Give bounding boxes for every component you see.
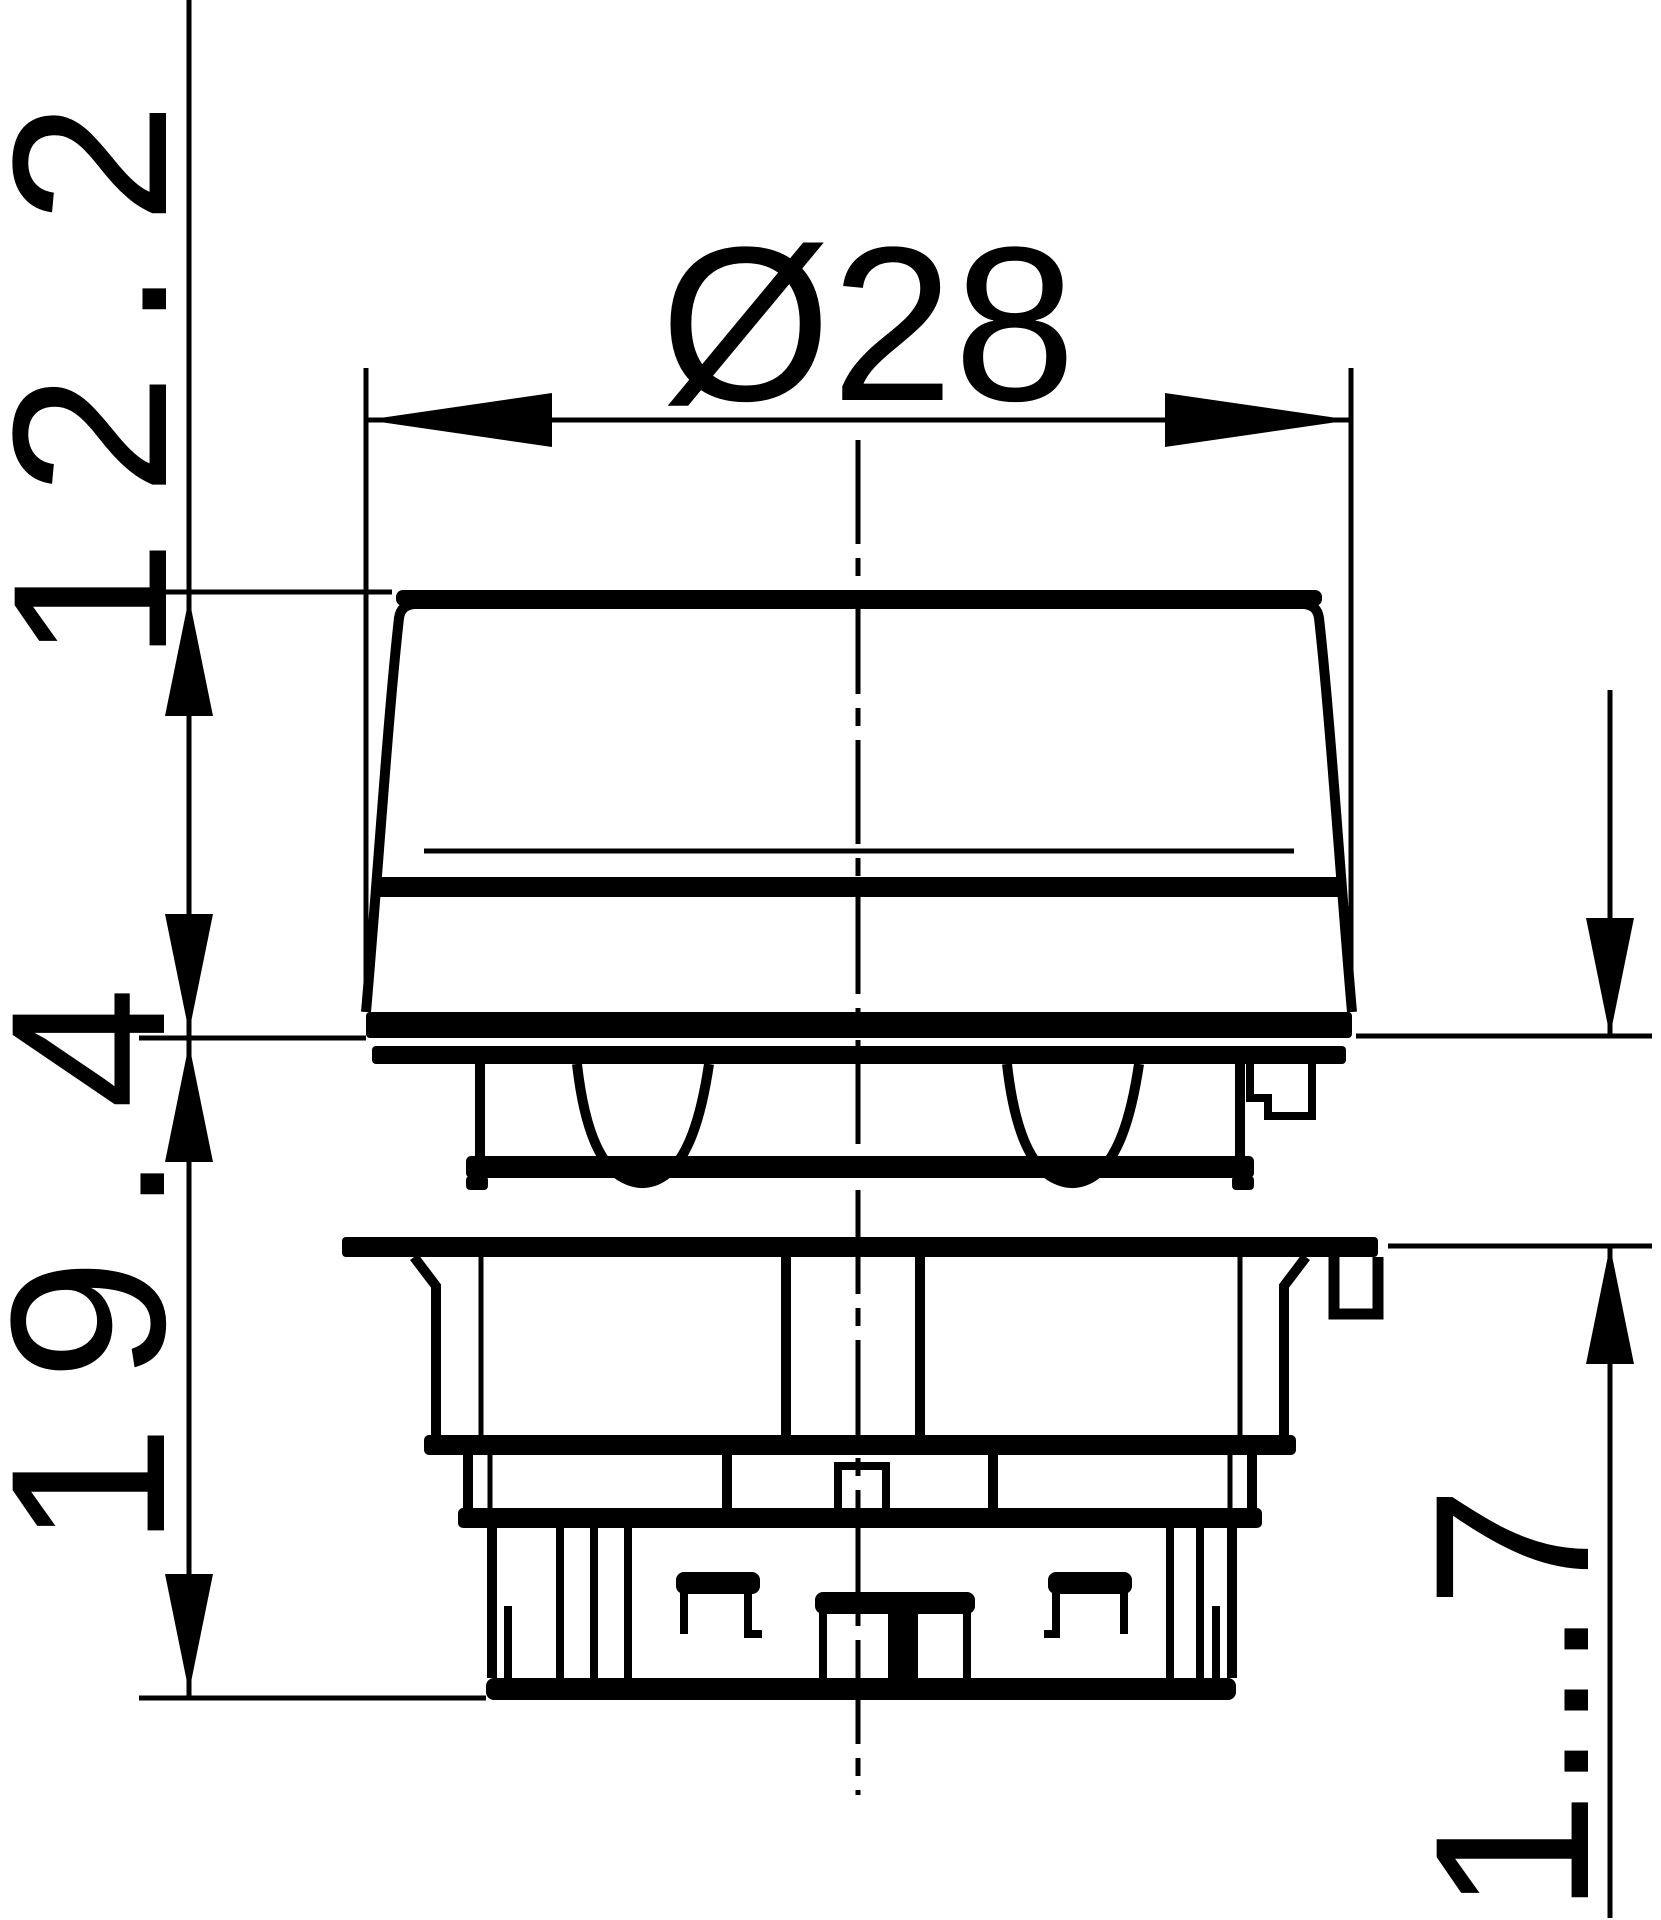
arrowhead-down bbox=[1586, 918, 1634, 1036]
skirt-band-lower bbox=[372, 1046, 1346, 1064]
flange-nose-right bbox=[1334, 1257, 1378, 1314]
cap-joint-bar bbox=[376, 877, 1342, 897]
dimension-panel-thickness: 1...7 bbox=[1356, 690, 1652, 1918]
tier-center-notch bbox=[838, 1466, 886, 1512]
dimension-left-column: 12.2 19.4 bbox=[0, 0, 486, 1698]
base-hook-right-cap bbox=[1048, 1572, 1132, 1594]
base-hook-left-leg bbox=[748, 1592, 762, 1634]
flange-bottom-bar bbox=[424, 1435, 1296, 1455]
flange-side-left bbox=[414, 1257, 436, 1437]
dim-label-diameter: Ø28 bbox=[660, 201, 1076, 447]
neck-with-snap-clips bbox=[466, 1064, 1312, 1190]
arrowhead-right bbox=[1165, 393, 1351, 447]
base-hook-left-cap bbox=[676, 1572, 760, 1594]
arrowhead-up bbox=[1586, 1246, 1634, 1364]
skirt-band-upper bbox=[366, 1012, 1352, 1038]
base-center-tooth bbox=[888, 1610, 918, 1682]
base-hook-right-leg bbox=[1044, 1592, 1056, 1634]
tier-bottom-bar bbox=[458, 1508, 1262, 1528]
neck-tab-right bbox=[1250, 1064, 1312, 1116]
arrowhead-down bbox=[165, 1574, 213, 1692]
arrowhead-left bbox=[366, 393, 552, 447]
base-bottom-edge bbox=[486, 1678, 1236, 1700]
cap-top-edge bbox=[396, 590, 1322, 606]
technical-drawing: Ø28 12.2 19.4 1...7 bbox=[0, 0, 1661, 1920]
flange-top-bar bbox=[342, 1237, 1378, 1257]
dim-label-body-height: 19.4 bbox=[0, 943, 211, 1547]
neck-bottom-bar bbox=[466, 1156, 1254, 1178]
neck-foot-left bbox=[466, 1176, 488, 1190]
flange-side-right bbox=[1284, 1257, 1306, 1437]
dim-label-panel-thickness: 1...7 bbox=[1389, 1486, 1635, 1914]
castellated-base bbox=[486, 1528, 1236, 1700]
neck-foot-right bbox=[1232, 1176, 1254, 1190]
pushbutton-side-view-drawing: Ø28 12.2 19.4 1...7 bbox=[0, 0, 1661, 1920]
dim-label-cap-height: 12.2 bbox=[0, 58, 213, 662]
